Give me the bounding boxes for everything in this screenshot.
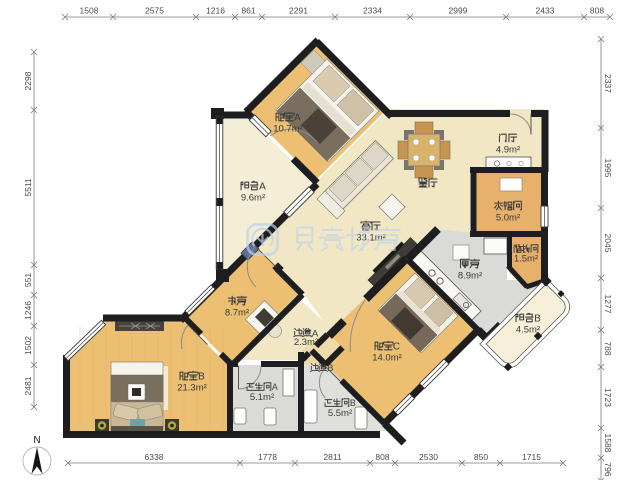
svg-text:B: B <box>534 314 541 325</box>
svg-text:2337: 2337 <box>603 74 613 93</box>
svg-text:2.3m²: 2.3m² <box>294 337 318 348</box>
svg-text:808: 808 <box>375 452 389 462</box>
svg-text:1995: 1995 <box>603 159 613 178</box>
svg-text:1246: 1246 <box>23 301 33 320</box>
svg-text:9.6m²: 9.6m² <box>241 193 265 204</box>
svg-text:1277: 1277 <box>603 295 613 314</box>
svg-text:2481: 2481 <box>23 376 33 395</box>
svg-text:861: 861 <box>241 6 255 16</box>
svg-text:2433: 2433 <box>536 6 555 16</box>
svg-text:2575: 2575 <box>145 6 164 16</box>
svg-text:1588: 1588 <box>603 434 613 453</box>
svg-text:1.5m²: 1.5m² <box>514 254 538 265</box>
svg-text:2530: 2530 <box>419 452 438 462</box>
svg-text:4.9m²: 4.9m² <box>496 145 520 156</box>
svg-text:808: 808 <box>590 6 604 16</box>
svg-text:A: A <box>259 182 266 193</box>
svg-text:N: N <box>33 435 40 446</box>
svg-text:5511: 5511 <box>23 178 33 197</box>
svg-text:5.1m²: 5.1m² <box>250 392 274 403</box>
svg-text:8.9m²: 8.9m² <box>458 271 482 282</box>
svg-text:1778: 1778 <box>258 452 277 462</box>
svg-text:1723: 1723 <box>603 388 613 407</box>
svg-text:B: B <box>350 398 356 408</box>
svg-text:14.0m²: 14.0m² <box>372 353 402 364</box>
svg-text:2334: 2334 <box>363 6 382 16</box>
svg-text:850: 850 <box>474 452 488 462</box>
svg-text:1216: 1216 <box>206 6 225 16</box>
svg-text:1502: 1502 <box>23 336 33 355</box>
svg-text:A: A <box>294 113 301 124</box>
svg-text:10.7m²: 10.7m² <box>273 124 303 135</box>
svg-text:6338: 6338 <box>145 452 164 462</box>
svg-text:5.0m²: 5.0m² <box>496 213 520 224</box>
svg-text:4.5m²: 4.5m² <box>516 325 540 336</box>
svg-text:788: 788 <box>603 341 613 355</box>
svg-text:B: B <box>328 363 334 373</box>
svg-text:551: 551 <box>23 273 33 287</box>
svg-text:21.3m²: 21.3m² <box>177 383 207 394</box>
svg-text:796: 796 <box>603 462 613 476</box>
svg-text:B: B <box>198 372 205 383</box>
svg-text:2298: 2298 <box>23 71 33 90</box>
svg-text:2045: 2045 <box>603 234 613 253</box>
svg-text:2811: 2811 <box>323 452 342 462</box>
svg-text:A: A <box>272 382 278 392</box>
svg-text:2291: 2291 <box>289 6 308 16</box>
svg-text:1715: 1715 <box>522 452 541 462</box>
svg-text:8.7m²: 8.7m² <box>225 308 249 319</box>
svg-text:1508: 1508 <box>80 6 99 16</box>
svg-text:2999: 2999 <box>449 6 468 16</box>
svg-text:C: C <box>393 342 400 353</box>
svg-text:5.5m²: 5.5m² <box>328 408 352 419</box>
